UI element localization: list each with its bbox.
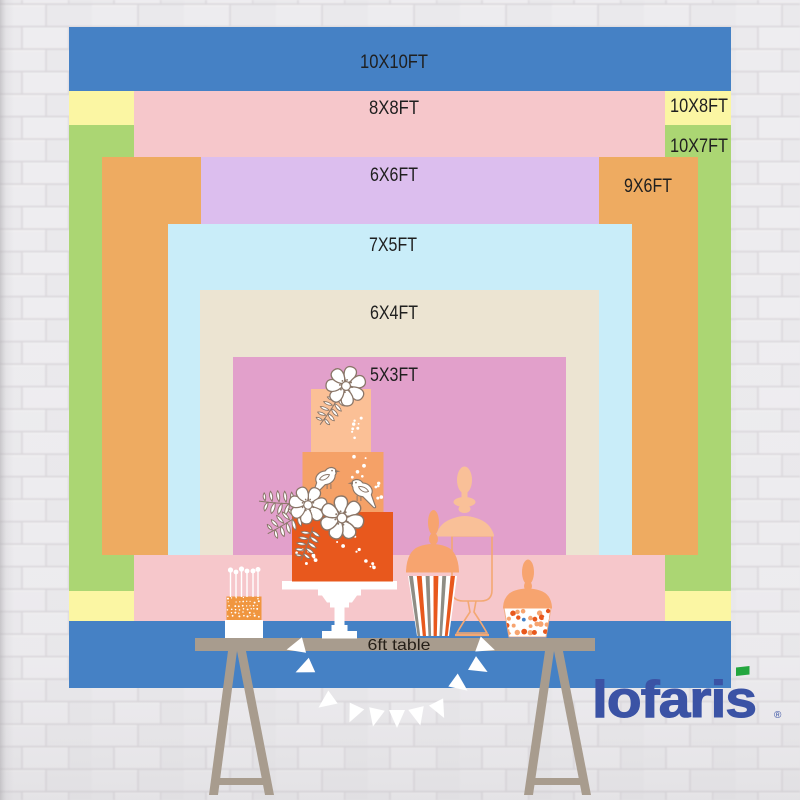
svg-text:6ft table: 6ft table (368, 637, 431, 654)
svg-text:9X6FT: 9X6FT (624, 175, 672, 197)
svg-text:10X7FT: 10X7FT (670, 135, 728, 157)
svg-text:10X8FT: 10X8FT (670, 95, 728, 117)
svg-text:7X5FT: 7X5FT (369, 234, 417, 256)
svg-text:®: ® (774, 710, 782, 721)
svg-text:10X10FT: 10X10FT (360, 51, 428, 73)
svg-text:8X8FT: 8X8FT (369, 97, 419, 119)
svg-text:5X3FT: 5X3FT (370, 364, 418, 386)
svg-text:6X4FT: 6X4FT (370, 302, 418, 324)
svg-text:6X6FT: 6X6FT (370, 164, 418, 186)
svg-text:lofaris: lofaris (592, 671, 756, 729)
